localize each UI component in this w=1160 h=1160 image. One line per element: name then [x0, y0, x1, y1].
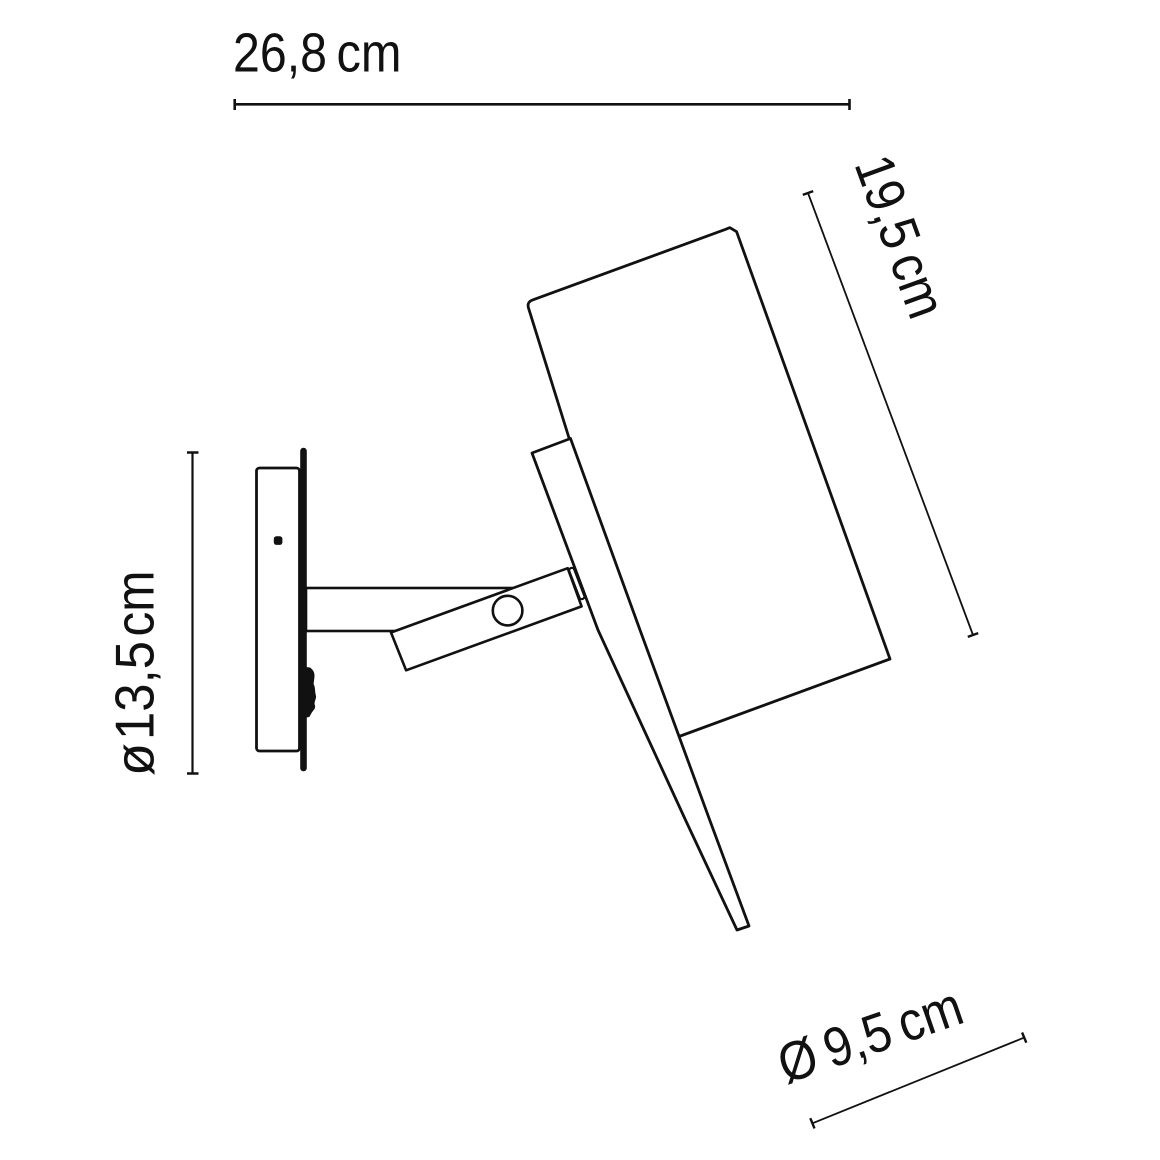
svg-text:cm: cm	[104, 571, 166, 637]
svg-text:26,8: 26,8	[233, 22, 327, 84]
svg-text:cm: cm	[337, 22, 402, 84]
svg-text:ø: ø	[104, 743, 166, 776]
svg-text:13,5: 13,5	[104, 641, 166, 740]
